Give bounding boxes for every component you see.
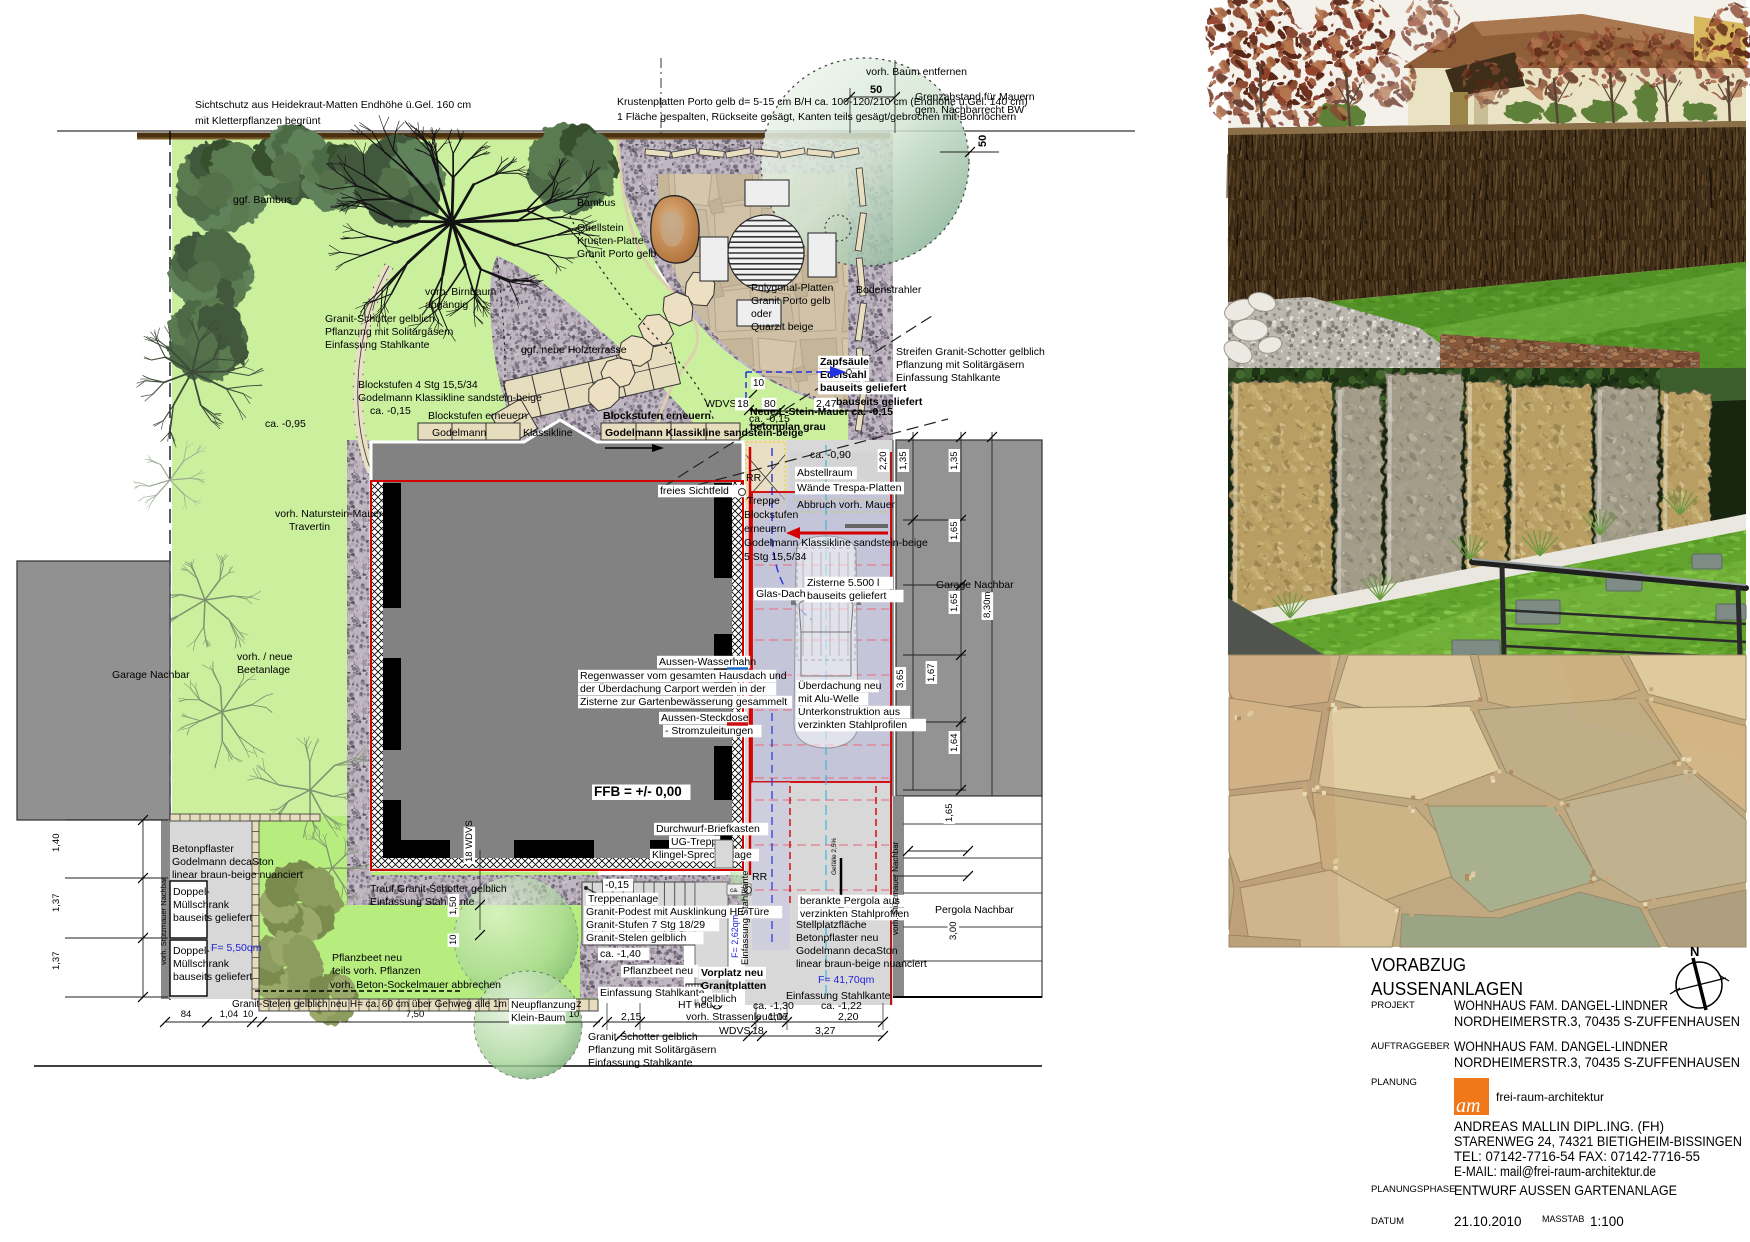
svg-text:DATUM: DATUM (1371, 1216, 1404, 1227)
svg-text:Neupflanzung: Neupflanzung (511, 999, 576, 1011)
svg-text:Überdachung neu: Überdachung neu (798, 680, 882, 692)
svg-text:N: N (1690, 944, 1699, 959)
svg-text:ca. -0,95: ca. -0,95 (265, 418, 306, 430)
svg-text:Pflanzbeet neu: Pflanzbeet neu (623, 965, 693, 977)
svg-text:Einfassung Stahlkante: Einfassung Stahlkante (600, 987, 705, 999)
svg-text:1:100: 1:100 (1590, 1214, 1624, 1229)
svg-text:1,50: 1,50 (448, 897, 459, 916)
svg-text:TEL: 07142-7716-54 FAX: 0714: TEL: 07142-7716-54 FAX: 07142-7716-55 (1454, 1149, 1700, 1164)
svg-text:AUFTRAGGEBER: AUFTRAGGEBER (1371, 1041, 1450, 1052)
svg-text:10: 10 (753, 378, 765, 389)
svg-text:Treppenanlage: Treppenanlage (588, 893, 658, 905)
svg-text:Edelstahl: Edelstahl (820, 369, 867, 381)
svg-text:teils vorh. Pflanzen: teils vorh. Pflanzen (332, 965, 421, 977)
svg-text:Vorplatz neu: Vorplatz neu (701, 967, 763, 979)
svg-text:Granit Porto gelb: Granit Porto gelb (751, 295, 831, 307)
svg-text:RR: RR (746, 472, 762, 484)
svg-text:abgängig: abgängig (425, 299, 468, 311)
svg-text:Godelmann decaSton: Godelmann decaSton (796, 945, 898, 957)
svg-text:PROJEKT: PROJEKT (1371, 1000, 1415, 1011)
svg-text:Granit Porto gelb: Granit Porto gelb (577, 248, 657, 260)
svg-text:18 WDVS: 18 WDVS (464, 820, 475, 862)
svg-text:Einfassung Stahlkante: Einfassung Stahlkante (740, 870, 751, 965)
svg-text:F= 5,50qm: F= 5,50qm (211, 942, 262, 954)
svg-text:Granitplatten: Granitplatten (701, 980, 766, 992)
svg-text:ENTWURF AUSSEN GARTENANLAGE: ENTWURF AUSSEN GARTENANLAGE (1454, 1183, 1677, 1198)
svg-text:1,67: 1,67 (926, 664, 937, 683)
svg-text:AUSSENANLAGEN: AUSSENANLAGEN (1371, 978, 1523, 999)
svg-text:der Überdachung Carport werden: der Überdachung Carport werden in der (580, 683, 766, 695)
svg-text:Zisterne 5.500 l: Zisterne 5.500 l (807, 577, 879, 589)
svg-text:Blockstufen: Blockstufen (744, 509, 798, 521)
svg-text:2,20: 2,20 (878, 452, 889, 471)
svg-text:2,15: 2,15 (621, 1011, 642, 1023)
svg-text:betonplan grau: betonplan grau (750, 421, 826, 433)
svg-text:Pflanzung mit Solitärgäsern: Pflanzung mit Solitärgäsern (325, 326, 454, 338)
svg-text:oder: oder (751, 308, 773, 320)
svg-text:NORDHEIMERSTR.3, 70435 S-ZUFFE: NORDHEIMERSTR.3, 70435 S-ZUFFENHAUSEN (1454, 1055, 1740, 1070)
svg-text:bauseits geliefert: bauseits geliefert (173, 971, 252, 983)
svg-text:VORABZUG: VORABZUG (1371, 954, 1466, 975)
svg-text:ggf. Bambus: ggf. Bambus (233, 194, 292, 206)
svg-text:Travertin: Travertin (289, 521, 330, 533)
svg-text:Bambus: Bambus (577, 197, 616, 209)
svg-text:ca. -1,40: ca. -1,40 (600, 948, 641, 960)
svg-text:3,00: 3,00 (948, 922, 959, 941)
svg-text:F= 41,70qm: F= 41,70qm (818, 974, 875, 986)
svg-text:- Stromzuleitungen: - Stromzuleitungen (665, 725, 753, 737)
svg-text:WOHNHAUS FAM. DANGEL-LINDNER: WOHNHAUS FAM. DANGEL-LINDNER (1454, 1039, 1668, 1054)
svg-text:Doppel-: Doppel- (173, 945, 210, 957)
svg-text:linear braun-beige nuanciert: linear braun-beige nuanciert (796, 958, 927, 970)
svg-text:bauseits geliefert: bauseits geliefert (173, 912, 252, 924)
svg-text:F= 2,62qm: F= 2,62qm (730, 915, 740, 958)
svg-text:Müllschrank: Müllschrank (173, 958, 230, 970)
svg-text:linear braun-beige nuanciert: linear braun-beige nuanciert (172, 869, 303, 881)
svg-text:Müllschrank: Müllschrank (173, 899, 230, 911)
svg-text:bauseits geliefert: bauseits geliefert (820, 382, 907, 394)
svg-text:vorh. Beton-Sockelmauer abbrec: vorh. Beton-Sockelmauer abbrechen (330, 979, 501, 991)
svg-text:ca. -0,15: ca. -0,15 (370, 405, 411, 417)
svg-text:1,64: 1,64 (949, 734, 960, 753)
svg-text:verzinkten Stahlprofilen: verzinkten Stahlprofilen (798, 719, 907, 731)
svg-text:Granit-Stelen gelblich: Granit-Stelen gelblich (586, 932, 687, 944)
svg-text:Abstellraum: Abstellraum (797, 467, 853, 479)
svg-text:freies Sichtfeld: freies Sichtfeld (660, 485, 729, 497)
svg-text:Abbruch vorh. Mauer: Abbruch vorh. Mauer (797, 499, 896, 511)
svg-text:Doppel-: Doppel- (173, 886, 210, 898)
svg-text:WOHNHAUS FAM. DANGEL-LINDNER: WOHNHAUS FAM. DANGEL-LINDNER (1454, 998, 1668, 1013)
svg-text:am: am (1456, 1095, 1480, 1117)
svg-text:Klingel-Sprechanlage: Klingel-Sprechanlage (652, 849, 752, 861)
svg-text:WDVS: WDVS (705, 398, 737, 410)
svg-text:Pflanzung mit Solitärgäsern: Pflanzung mit Solitärgäsern (896, 359, 1025, 371)
svg-text:Godelmann decaSton: Godelmann decaSton (172, 856, 274, 868)
svg-text:Polygonal-Platten: Polygonal-Platten (751, 282, 833, 294)
svg-text:Granit-Stufen 7 Stg 18/29: Granit-Stufen 7 Stg 18/29 (586, 919, 705, 931)
svg-text:Godelmann Klassikline sandstei: Godelmann Klassikline sandstein-beige (358, 392, 542, 404)
svg-text:8,30m: 8,30m (982, 592, 993, 618)
svg-text:Pflanzbeet neu: Pflanzbeet neu (332, 952, 402, 964)
svg-text:7,50: 7,50 (406, 1009, 425, 1020)
svg-text:Einfassung Stahlkante: Einfassung Stahlkante (588, 1057, 693, 1069)
svg-text:Blockstufen erneuern: Blockstufen erneuern (428, 410, 527, 422)
svg-text:Zisterne zur Gartenbewässerung: Zisterne zur Gartenbewässerung gesammelt (580, 696, 787, 708)
svg-text:1,65: 1,65 (944, 804, 955, 823)
svg-text:RR: RR (752, 871, 768, 883)
svg-text:1,35: 1,35 (949, 452, 960, 471)
svg-text:WDVS: WDVS (719, 1025, 751, 1037)
svg-text:vorh. Birnbaum: vorh. Birnbaum (425, 286, 496, 298)
svg-text:frei-raum-architektur: frei-raum-architektur (1496, 1090, 1604, 1104)
svg-text:Unterkonstruktion aus: Unterkonstruktion aus (798, 706, 900, 718)
svg-text:3,65: 3,65 (895, 670, 906, 689)
svg-text:Granit-Schotter gelblich: Granit-Schotter gelblich (588, 1031, 698, 1043)
svg-text:Regenwasser vom gesamten Hausd: Regenwasser vom gesamten Hausdach und (580, 670, 787, 682)
svg-text:84: 84 (181, 1009, 192, 1020)
svg-text:PLANUNG: PLANUNG (1371, 1077, 1417, 1088)
svg-text:Trauf Granit-Schotter gelblich: Trauf Granit-Schotter gelblich (370, 883, 507, 895)
svg-text:50: 50 (977, 135, 989, 147)
svg-text:ANDREAS MALLIN DIPL.ING. (FH): ANDREAS MALLIN DIPL.ING. (FH) (1454, 1119, 1664, 1134)
svg-text:vorh. / neue: vorh. / neue (237, 651, 293, 663)
svg-text:Aussen-Wasserhahn: Aussen-Wasserhahn (659, 656, 756, 668)
svg-text:3,27: 3,27 (815, 1025, 836, 1037)
svg-text:Klein-Baum: Klein-Baum (511, 1012, 566, 1024)
svg-text:gem. Nachbarrecht BW: gem. Nachbarrecht BW (915, 104, 1024, 116)
svg-text:Godelmann: Godelmann (432, 427, 486, 439)
svg-text:ca. -0,90: ca. -0,90 (810, 449, 851, 461)
svg-text:1,65: 1,65 (949, 594, 960, 613)
svg-text:E-MAIL: mail@frei-raum-archite: E-MAIL: mail@frei-raum-architektur.de (1454, 1164, 1656, 1179)
svg-text:vorh. Baum entfernen: vorh. Baum entfernen (866, 66, 967, 78)
svg-text:vorh. Stützmauer Nachbar: vorh. Stützmauer Nachbar (159, 877, 168, 965)
svg-text:Streifen Granit-Schotter gelbl: Streifen Granit-Schotter gelblich (896, 346, 1045, 358)
svg-text:Stellplatzfläche: Stellplatzfläche (796, 919, 867, 931)
svg-text:Wände Trespa-Platten: Wände Trespa-Platten (797, 482, 902, 494)
svg-text:10: 10 (243, 1009, 254, 1020)
svg-text:ggf. neue Holzterrasse: ggf. neue Holzterrasse (521, 344, 627, 356)
svg-text:Garage Nachbar: Garage Nachbar (936, 579, 1014, 591)
svg-text:1,07: 1,07 (768, 1011, 789, 1023)
svg-text:Durchwurf-Briefkasten: Durchwurf-Briefkasten (656, 823, 760, 835)
svg-text:mit Kletterpflanzen begrünt: mit Kletterpflanzen begrünt (195, 115, 321, 127)
svg-text:FFB = +/- 0,00: FFB = +/- 0,00 (594, 784, 682, 799)
svg-text:Aussen-Steckdose: Aussen-Steckdose (661, 712, 749, 724)
svg-text:50: 50 (870, 84, 882, 96)
svg-text:Quarzit beige: Quarzit beige (751, 321, 814, 333)
svg-text:erneuern: erneuern (744, 523, 786, 535)
svg-text:Zapfsäule: Zapfsäule (820, 356, 869, 368)
svg-text:5 Stg 15,5/34: 5 Stg 15,5/34 (744, 551, 807, 563)
svg-text:Quellstein: Quellstein (577, 222, 624, 234)
svg-text:2,20: 2,20 (838, 1011, 859, 1023)
svg-text:mit Alu-Welle: mit Alu-Welle (798, 693, 859, 705)
svg-text:Glas-Dach: Glas-Dach (756, 588, 806, 600)
svg-text:HT neu: HT neu (678, 999, 712, 1011)
svg-text:Garage Nachbar: Garage Nachbar (112, 669, 190, 681)
svg-text:-0,15: -0,15 (605, 879, 629, 891)
svg-text:NORDHEIMERSTR.3, 70435 S-ZUFFE: NORDHEIMERSTR.3, 70435 S-ZUFFENHAUSEN (1454, 1014, 1740, 1029)
svg-text:Granit-Schotter gelblich: Granit-Schotter gelblich (325, 313, 435, 325)
svg-text:MASSTAB: MASSTAB (1542, 1214, 1584, 1224)
svg-text:Pergola Nachbar: Pergola Nachbar (935, 904, 1014, 916)
svg-text:Grenzabstand für Mauern: Grenzabstand für Mauern (915, 91, 1035, 103)
svg-text:1,04: 1,04 (220, 1009, 239, 1020)
svg-text:1,35: 1,35 (898, 452, 909, 471)
svg-text:Krusten-Platte: Krusten-Platte (577, 235, 644, 247)
svg-text:bauseits geliefert: bauseits geliefert (807, 590, 886, 602)
svg-text:21.10.2010: 21.10.2010 (1454, 1214, 1522, 1229)
svg-text:berankte Pergola aus: berankte Pergola aus (800, 895, 900, 907)
svg-text:vorh. Stützmauer Nachbar: vorh. Stützmauer Nachbar (891, 841, 900, 935)
svg-text:1,65: 1,65 (949, 522, 960, 541)
svg-text:1,37: 1,37 (51, 952, 62, 971)
svg-text:18: 18 (737, 398, 749, 410)
svg-text:PLANUNGSPHASE: PLANUNGSPHASE (1371, 1184, 1455, 1195)
svg-text:Betonpflaster neu: Betonpflaster neu (796, 932, 878, 944)
svg-text:Betonpflaster: Betonpflaster (172, 843, 234, 855)
svg-text:Gefälle 2,5%: Gefälle 2,5% (831, 838, 838, 875)
svg-text:Klassikline: Klassikline (523, 427, 573, 439)
svg-text:vorh. Naturstein-Mauer: vorh. Naturstein-Mauer (275, 508, 383, 520)
svg-text:STARENWEG 24, 74321 BIETIGHEIM: STARENWEG 24, 74321 BIETIGHEIM-BISSINGEN (1454, 1134, 1742, 1149)
svg-text:18: 18 (752, 1025, 764, 1037)
svg-text:Pflanzung mit Solitärgäsern: Pflanzung mit Solitärgäsern (588, 1044, 717, 1056)
svg-text:Beetanlage: Beetanlage (237, 664, 290, 676)
svg-text:Blockstufen 4 Stg 15,5/34: Blockstufen 4 Stg 15,5/34 (358, 379, 478, 391)
svg-text:Godelmann Klassikline sandstei: Godelmann Klassikline sandstein-beige (744, 537, 928, 549)
svg-text:1,37: 1,37 (51, 894, 62, 913)
svg-text:10: 10 (448, 934, 459, 945)
svg-text:Treppe: Treppe (747, 495, 780, 507)
svg-text:Neue L-Stein-Mauer ca. -0,15: Neue L-Stein-Mauer ca. -0,15 (750, 406, 893, 418)
svg-text:1,40: 1,40 (51, 834, 62, 853)
svg-text:Einfassung Stahlkante: Einfassung Stahlkante (325, 339, 430, 351)
svg-text:Sichtschutz aus Heidekraut-Mat: Sichtschutz aus Heidekraut-Matten Endhöh… (195, 99, 471, 111)
svg-text:Blockstufen erneuern: Blockstufen erneuern (603, 410, 711, 422)
svg-text:Bodenstrahler: Bodenstrahler (856, 284, 922, 296)
